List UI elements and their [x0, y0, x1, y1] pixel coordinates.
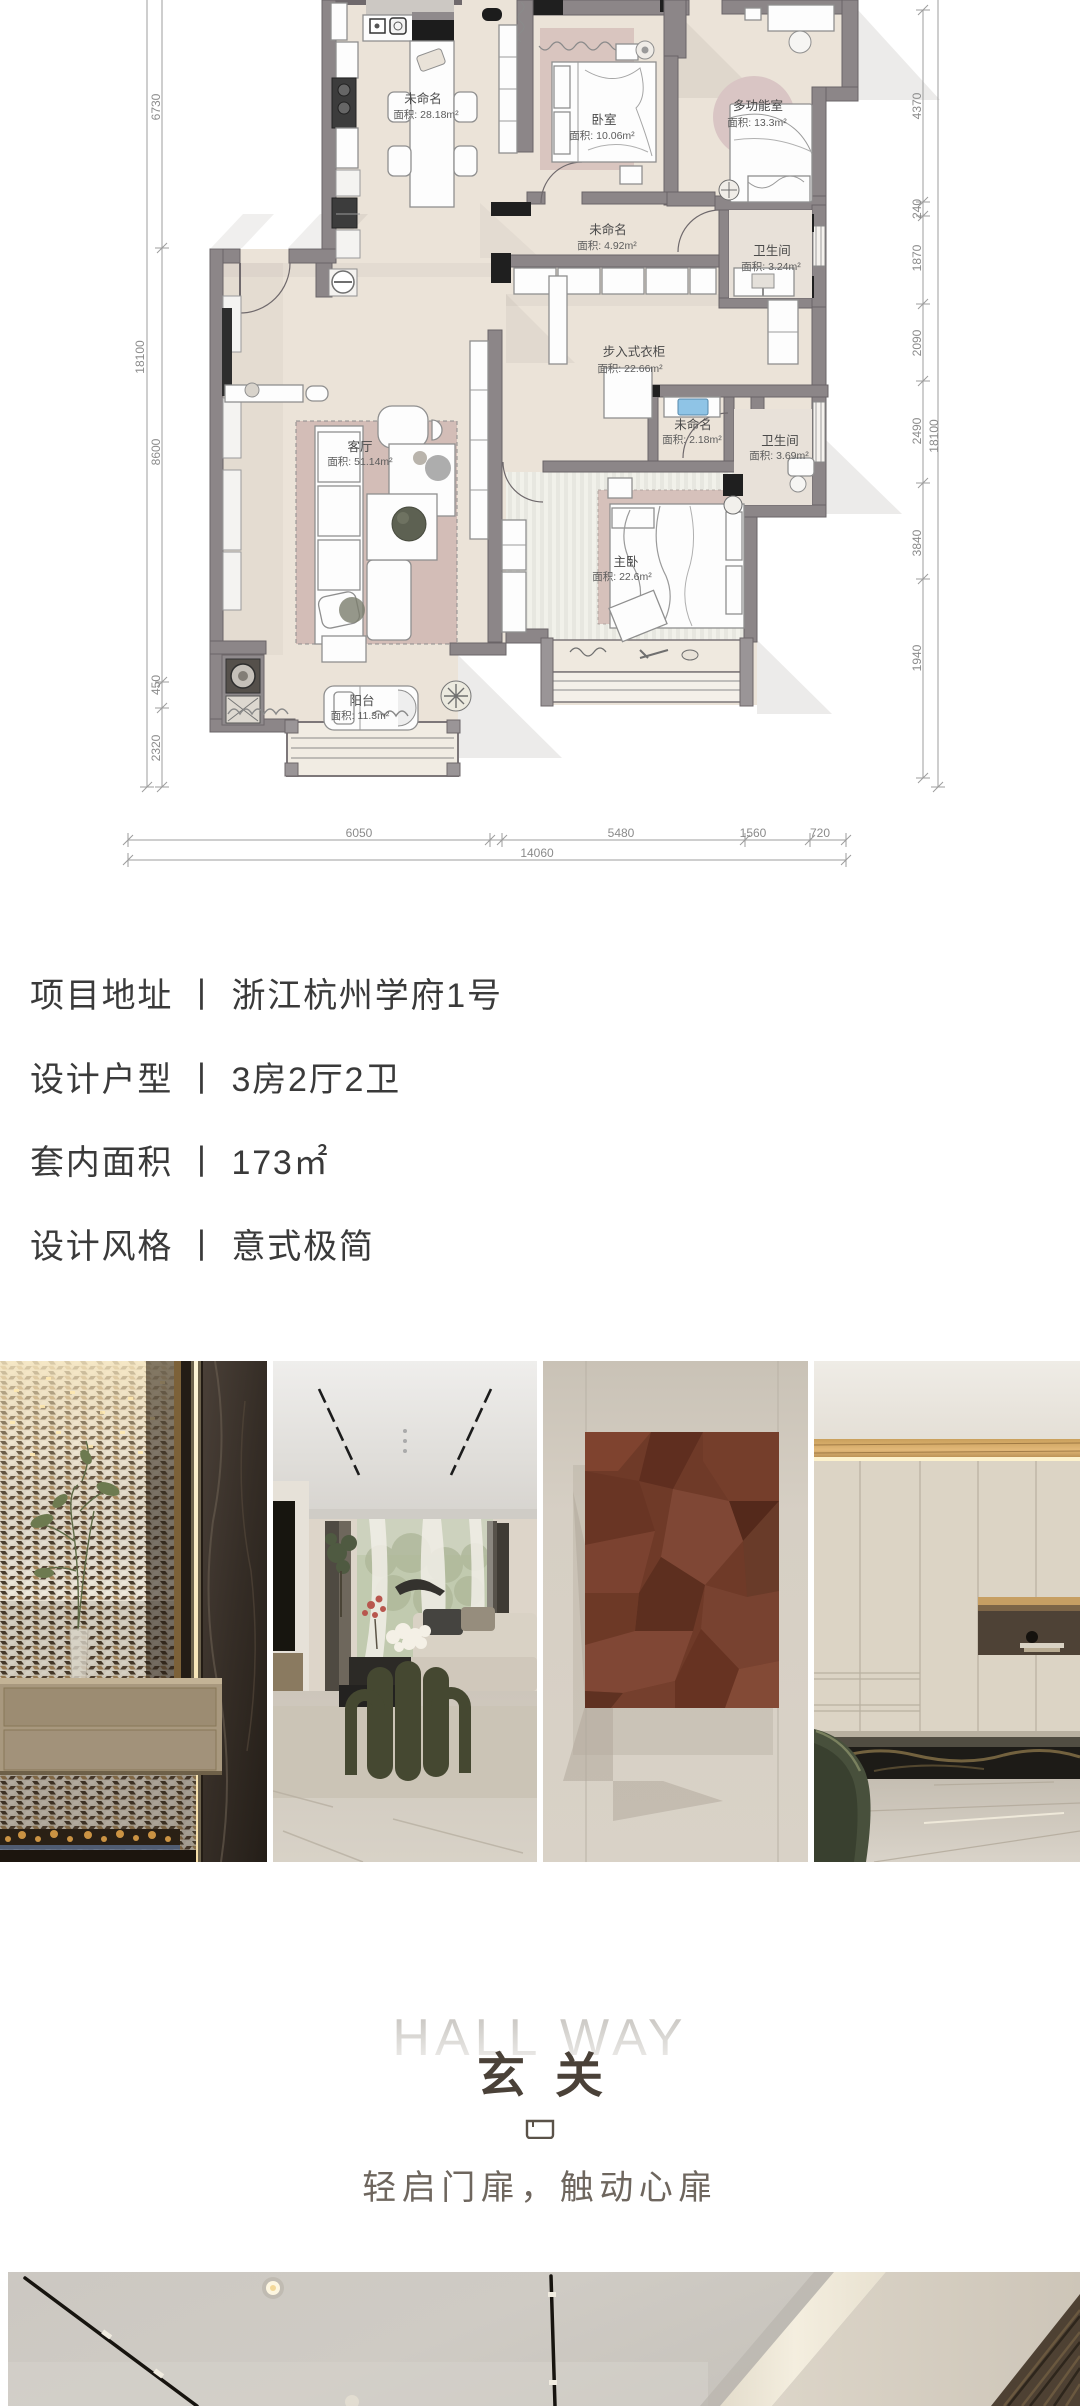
svg-text:面积: 51.14m²: 面积: 51.14m²: [327, 456, 393, 468]
svg-text:卫生间: 卫生间: [761, 434, 799, 448]
svg-text:3840: 3840: [910, 529, 924, 556]
svg-text:面积: 4.92m²: 面积: 4.92m²: [577, 240, 637, 252]
svg-text:18100: 18100: [133, 340, 147, 374]
svg-text:8600: 8600: [149, 438, 163, 465]
svg-text:2490: 2490: [910, 417, 924, 444]
svg-text:步入式衣柜: 步入式衣柜: [603, 344, 666, 359]
svg-text:面积: 10.06m²: 面积: 10.06m²: [569, 130, 635, 142]
svg-text:1560: 1560: [740, 826, 767, 840]
svg-text:阳台: 阳台: [349, 693, 374, 708]
svg-text:1940: 1940: [910, 644, 924, 671]
svg-text:1870: 1870: [910, 244, 924, 271]
svg-text:6050: 6050: [346, 826, 373, 840]
svg-text:18100: 18100: [927, 419, 941, 453]
svg-text:2090: 2090: [910, 329, 924, 356]
svg-text:14060: 14060: [520, 846, 554, 860]
svg-text:卫生间: 卫生间: [753, 244, 791, 258]
svg-text:面积: 28.18m²: 面积: 28.18m²: [393, 109, 459, 121]
svg-text:面积: 22.66m²: 面积: 22.66m²: [597, 363, 663, 375]
svg-text:面积: 3.69m²: 面积: 3.69m²: [749, 450, 809, 462]
svg-text:450: 450: [149, 675, 163, 695]
svg-text:面积: 22.6m²: 面积: 22.6m²: [592, 571, 652, 583]
svg-text:多功能室: 多功能室: [733, 98, 783, 113]
svg-text:客厅: 客厅: [347, 439, 372, 454]
svg-text:5480: 5480: [608, 826, 635, 840]
svg-text:2320: 2320: [149, 734, 163, 761]
svg-text:面积: 3.24m²: 面积: 3.24m²: [741, 261, 801, 273]
svg-text:主卧: 主卧: [613, 555, 638, 569]
svg-text:面积: 2.18m²: 面积: 2.18m²: [662, 434, 722, 446]
svg-text:720: 720: [810, 826, 830, 840]
svg-text:未命名: 未命名: [589, 222, 627, 237]
svg-text:4370: 4370: [910, 92, 924, 119]
svg-text:未命名: 未命名: [674, 417, 712, 432]
svg-text:面积: 13.3m²: 面积: 13.3m²: [727, 117, 787, 129]
svg-text:卧室: 卧室: [591, 112, 616, 127]
svg-text:240: 240: [910, 199, 924, 219]
svg-text:未命名: 未命名: [404, 91, 442, 106]
svg-text:6730: 6730: [149, 93, 163, 120]
svg-text:面积: 11.3m²: 面积: 11.3m²: [331, 710, 390, 722]
